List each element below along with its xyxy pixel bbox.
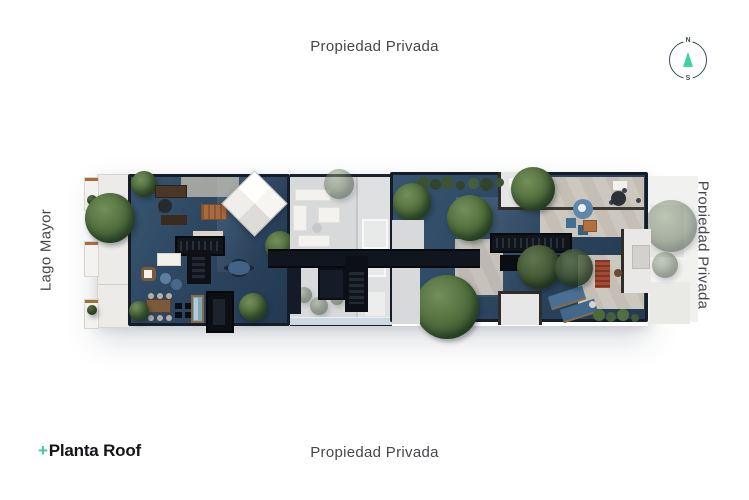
daybed — [157, 253, 181, 266]
notch-terrace-right — [621, 229, 651, 293]
surroundings-building-faint — [650, 282, 690, 324]
courtyard-extension — [392, 220, 424, 250]
tree — [555, 249, 593, 287]
dining-chairs — [148, 293, 154, 299]
tree — [239, 293, 267, 321]
tree — [131, 171, 157, 197]
balcony — [84, 241, 99, 277]
right-wing-roof — [390, 172, 648, 322]
ghost-skylight-frame — [362, 219, 388, 249]
tree — [415, 275, 479, 339]
side-table — [589, 301, 596, 308]
courtyard-extension — [392, 268, 420, 324]
tree — [85, 193, 135, 243]
ghost-daybed — [318, 207, 340, 223]
ghost-table — [312, 223, 322, 233]
stair-structure — [206, 291, 234, 333]
tree — [645, 200, 697, 252]
left-wing-roof — [128, 174, 290, 326]
ghost-sofa — [293, 205, 307, 231]
stair-shaft — [187, 250, 211, 284]
round-table — [611, 191, 626, 206]
ghost-bench — [613, 181, 627, 190]
notch-terrace-bottom — [498, 291, 542, 325]
bench — [161, 215, 187, 225]
oval-table-set — [228, 261, 250, 275]
ghost-box — [632, 245, 650, 269]
tree — [324, 169, 354, 199]
red-lounger — [595, 260, 610, 288]
dining-chairs — [148, 315, 154, 321]
page-background: Propiedad Privada Propiedad Privada Lago… — [0, 0, 749, 500]
pool-highlight — [194, 298, 198, 320]
tree — [447, 195, 493, 241]
stair-opening — [213, 299, 225, 325]
water-feature-strip — [290, 317, 392, 325]
walkway-bridge — [268, 249, 480, 268]
balcony-wood-edge — [85, 242, 98, 245]
tree — [129, 301, 149, 321]
roof-room — [318, 268, 345, 300]
pouf — [160, 273, 171, 284]
blue-round-rug — [573, 199, 593, 219]
orange-chair — [583, 220, 597, 232]
pouf — [171, 279, 182, 290]
tree — [511, 167, 555, 211]
roof-plan — [0, 0, 749, 500]
stairs — [349, 272, 364, 304]
dining-table — [146, 299, 171, 313]
round-table — [158, 199, 172, 213]
orange-loungers — [201, 204, 227, 220]
plunge-pool — [191, 295, 204, 323]
wicker-chair — [141, 267, 156, 281]
bench — [155, 185, 187, 198]
central-stairwell — [345, 256, 368, 312]
tree — [652, 252, 678, 278]
chair — [578, 204, 586, 212]
ghost-daybed — [298, 235, 330, 247]
grid-skylights — [175, 303, 192, 318]
tree — [393, 183, 431, 221]
chair-cushion — [144, 270, 152, 278]
cube-seat — [566, 218, 576, 228]
stairs — [192, 257, 205, 279]
side-table — [614, 269, 622, 277]
balcony-wood-edge — [85, 300, 98, 303]
bush-row — [593, 309, 605, 321]
balcony-plant — [87, 305, 97, 315]
walkway-wing — [288, 268, 301, 314]
facade-divider — [97, 284, 130, 285]
balcony-wood-edge — [85, 178, 98, 181]
